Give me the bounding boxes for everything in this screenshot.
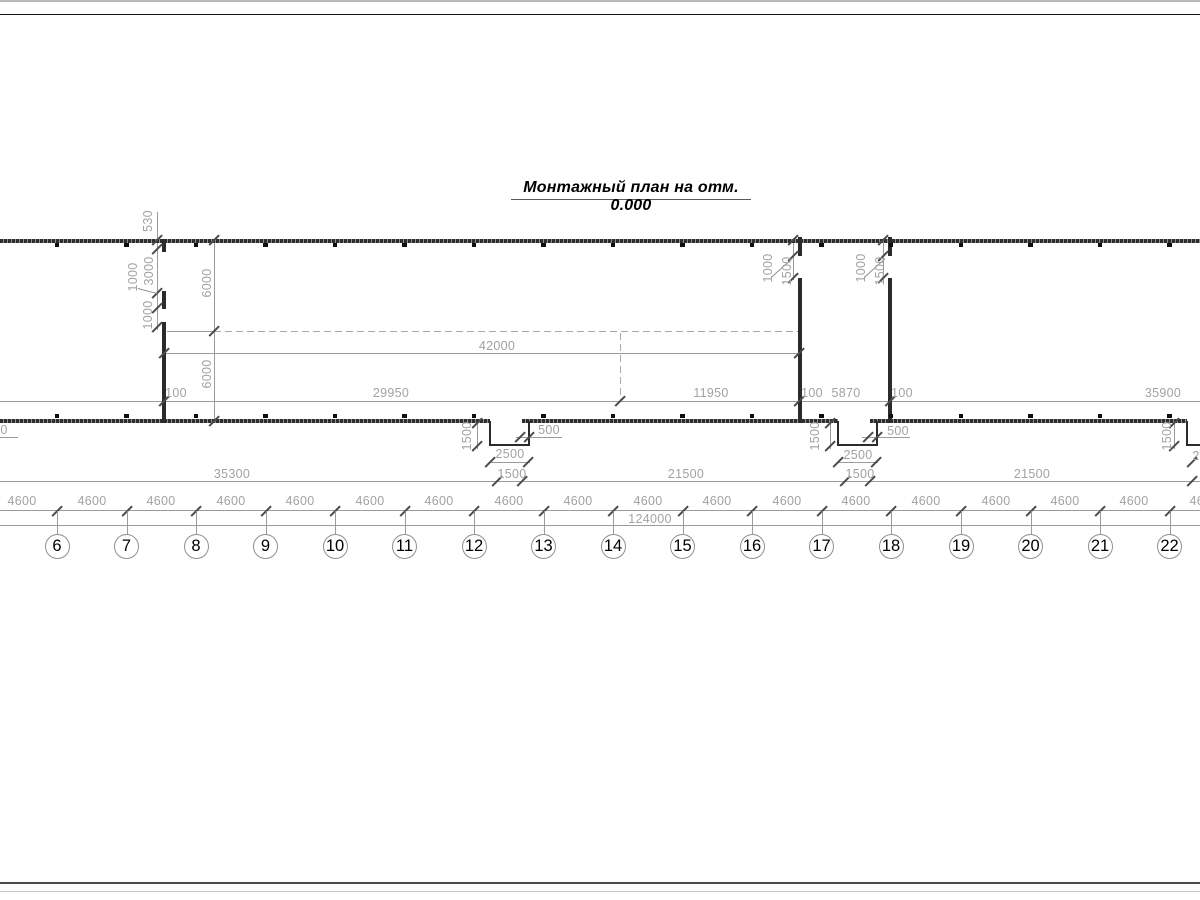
axis-circle: 9 (253, 534, 278, 559)
column-mark (194, 414, 199, 419)
dimension-label: 1000 (762, 253, 774, 282)
axis-number: 16 (743, 537, 761, 556)
dimension-label: 6000 (201, 359, 213, 388)
column-mark (611, 414, 616, 419)
column-mark (55, 243, 60, 248)
column-mark (333, 243, 338, 248)
column-mark (750, 243, 755, 248)
column-mark (263, 414, 268, 419)
axis-extension-line (405, 511, 406, 534)
spacing-dimension-label: 4600 (563, 495, 592, 507)
column-mark (959, 414, 964, 419)
dimension-line (0, 401, 1200, 402)
column-mark (750, 414, 755, 419)
column-mark (889, 243, 894, 248)
spacing-dimension-label: 4600 (1189, 495, 1200, 507)
axis-circle: 16 (740, 534, 765, 559)
column-mark (889, 414, 894, 419)
axis-circle: 7 (114, 534, 139, 559)
axis-number: 17 (812, 537, 830, 556)
axis-number: 11 (396, 537, 413, 556)
column-mark (402, 414, 407, 419)
axis-number: 18 (882, 537, 900, 556)
axis-extension-line (1031, 511, 1032, 534)
axis-circle: 18 (879, 534, 904, 559)
spacing-dimension-label: 4600 (7, 495, 36, 507)
axis-extension-line (752, 511, 753, 534)
sheet-frame-line (0, 882, 1200, 884)
axis-extension-line (1100, 511, 1101, 534)
dimension-label: 21500 (1014, 468, 1050, 480)
spacing-dimension-label: 4600 (216, 495, 245, 507)
column-mark (1098, 243, 1103, 248)
spacing-dimension-label: 4600 (1119, 495, 1148, 507)
axis-number: 14 (604, 537, 622, 556)
dimension-line (0, 510, 1200, 511)
wall-notch-line (837, 421, 839, 446)
axis-extension-line (196, 511, 197, 534)
axis-extension-line (822, 511, 823, 534)
column-mark (1098, 414, 1103, 419)
axis-number: 22 (1160, 537, 1178, 556)
dimension-label: 1500 (461, 421, 473, 450)
wall-segment (162, 239, 166, 252)
overall-dimension-label: 124000 (628, 513, 672, 525)
dimension-label: 1500 (497, 468, 526, 480)
axis-circle: 8 (184, 534, 209, 559)
axis-extension-line (335, 511, 336, 534)
dimension-label: 100 (801, 387, 823, 399)
dimension-line (0, 481, 1200, 482)
axis-extension-line (613, 511, 614, 534)
dimension-label: 2500 (495, 448, 524, 460)
spacing-dimension-label: 4600 (841, 495, 870, 507)
axis-circle: 22 (1157, 534, 1182, 559)
axis-extension-line (127, 511, 128, 534)
dimension-label: 530 (142, 210, 154, 232)
axis-extension-line (266, 511, 267, 534)
drawing-sheet: Монтажный план на отм. 0.000 42000100299… (0, 0, 1200, 900)
spacing-dimension-label: 4600 (772, 495, 801, 507)
spacing-dimension-label: 4600 (494, 495, 523, 507)
column-mark (402, 243, 407, 248)
column-mark (959, 243, 964, 248)
sheet-frame-line (0, 0, 1200, 2)
spacing-dimension-label: 4600 (911, 495, 940, 507)
spacing-dimension-label: 4600 (424, 495, 453, 507)
wall-segment (798, 237, 802, 256)
dimension-label: 5870 (831, 387, 860, 399)
dimension-label: 21500 (668, 468, 704, 480)
wall-segment (162, 291, 166, 309)
spacing-dimension-label: 4600 (702, 495, 731, 507)
dimension-label: 2 (1192, 450, 1199, 462)
spacing-dimension-label: 4600 (285, 495, 314, 507)
sheet-frame-line (0, 891, 1200, 892)
column-mark (55, 414, 60, 419)
column-mark (611, 243, 616, 248)
column-mark (1167, 243, 1172, 248)
axis-circle: 10 (323, 534, 348, 559)
axis-circle: 14 (601, 534, 626, 559)
wall-segment (870, 419, 1187, 424)
axis-number: 10 (326, 537, 344, 556)
axis-circle: 11 (392, 534, 417, 559)
column-mark (263, 243, 268, 248)
dimension-label: 0 (0, 424, 7, 436)
axis-circle: 21 (1088, 534, 1113, 559)
axis-extension-line (1170, 511, 1171, 534)
dimension-line (837, 462, 878, 463)
dimension-label: 1500 (874, 256, 886, 285)
column-mark (124, 243, 129, 248)
dimension-line (167, 331, 214, 332)
spacing-dimension-label: 4600 (355, 495, 384, 507)
dimension-label: 500 (538, 424, 560, 436)
dimension-label: 35900 (1145, 387, 1181, 399)
axis-number: 13 (534, 537, 552, 556)
axis-number: 15 (673, 537, 691, 556)
dimension-leader (138, 288, 158, 294)
dashed-axis-line (214, 331, 799, 332)
axis-extension-line (961, 511, 962, 534)
axis-number: 7 (122, 537, 131, 556)
dimension-label: 29950 (373, 387, 409, 399)
column-mark (819, 243, 824, 248)
wall-notch-line (1186, 444, 1200, 446)
column-mark (1028, 414, 1033, 419)
axis-circle: 6 (45, 534, 70, 559)
dimension-label: 1500 (1161, 421, 1173, 450)
axis-circle: 20 (1018, 534, 1043, 559)
axis-circle: 15 (670, 534, 695, 559)
wall-segment (0, 239, 1200, 243)
sheet-frame-line (0, 14, 1200, 16)
axis-circle: 19 (949, 534, 974, 559)
axis-extension-line (57, 511, 58, 534)
column-mark (680, 414, 685, 419)
wall-segment (522, 419, 838, 424)
dimension-label: 6000 (201, 268, 213, 297)
dimension-label: 1000 (855, 253, 867, 282)
axis-extension-line (474, 511, 475, 534)
wall-notch-line (489, 421, 491, 446)
column-mark (194, 243, 199, 248)
spacing-dimension-label: 4600 (1050, 495, 1079, 507)
dimension-line (516, 437, 562, 438)
dimension-label: 100 (891, 387, 913, 399)
axis-number: 8 (191, 537, 200, 556)
spacing-dimension-label: 4600 (633, 495, 662, 507)
column-mark (333, 414, 338, 419)
axis-number: 19 (952, 537, 970, 556)
column-mark (124, 414, 129, 419)
dimension-line (0, 437, 18, 438)
wall-notch-line (837, 444, 878, 446)
dimension-line (489, 462, 530, 463)
dimension-label: 1500 (781, 256, 793, 285)
dimension-label: 2500 (843, 449, 872, 461)
axis-number: 9 (261, 537, 270, 556)
dimension-label: 100 (165, 387, 187, 399)
axis-number: 21 (1091, 537, 1109, 556)
dimension-label: 500 (887, 425, 909, 437)
axis-extension-line (683, 511, 684, 534)
column-mark (680, 243, 685, 248)
axis-extension-line (544, 511, 545, 534)
axis-number: 12 (465, 537, 483, 556)
column-mark (1028, 243, 1033, 248)
dimension-label: 3000 (143, 256, 155, 285)
column-mark (541, 414, 546, 419)
dimension-label: 42000 (479, 340, 515, 352)
drawing-title: Монтажный план на отм. 0.000 (511, 179, 751, 200)
dimension-label: 1000 (127, 262, 139, 291)
dimension-line (157, 212, 158, 330)
column-mark (541, 243, 546, 248)
spacing-dimension-label: 4600 (77, 495, 106, 507)
dashed-axis-line (620, 333, 621, 402)
column-mark (1167, 414, 1172, 419)
dimension-label: 35300 (214, 468, 250, 480)
dimension-label: 1000 (142, 300, 154, 329)
dimension-label: 1500 (845, 468, 874, 480)
axis-number: 20 (1021, 537, 1039, 556)
wall-notch-line (489, 444, 530, 446)
axis-number: 6 (52, 537, 61, 556)
axis-circle: 13 (531, 534, 556, 559)
column-mark (472, 243, 477, 248)
axis-circle: 17 (809, 534, 834, 559)
wall-segment (0, 419, 490, 424)
wall-notch-line (1186, 421, 1188, 446)
dimension-label: 11950 (693, 387, 728, 399)
axis-extension-line (891, 511, 892, 534)
dimension-label: 1500 (809, 421, 821, 450)
spacing-dimension-label: 4600 (981, 495, 1010, 507)
column-mark (472, 414, 477, 419)
column-mark (819, 414, 824, 419)
axis-circle: 12 (462, 534, 487, 559)
dimension-line (0, 525, 1200, 526)
spacing-dimension-label: 4600 (146, 495, 175, 507)
wall-segment (162, 322, 166, 423)
